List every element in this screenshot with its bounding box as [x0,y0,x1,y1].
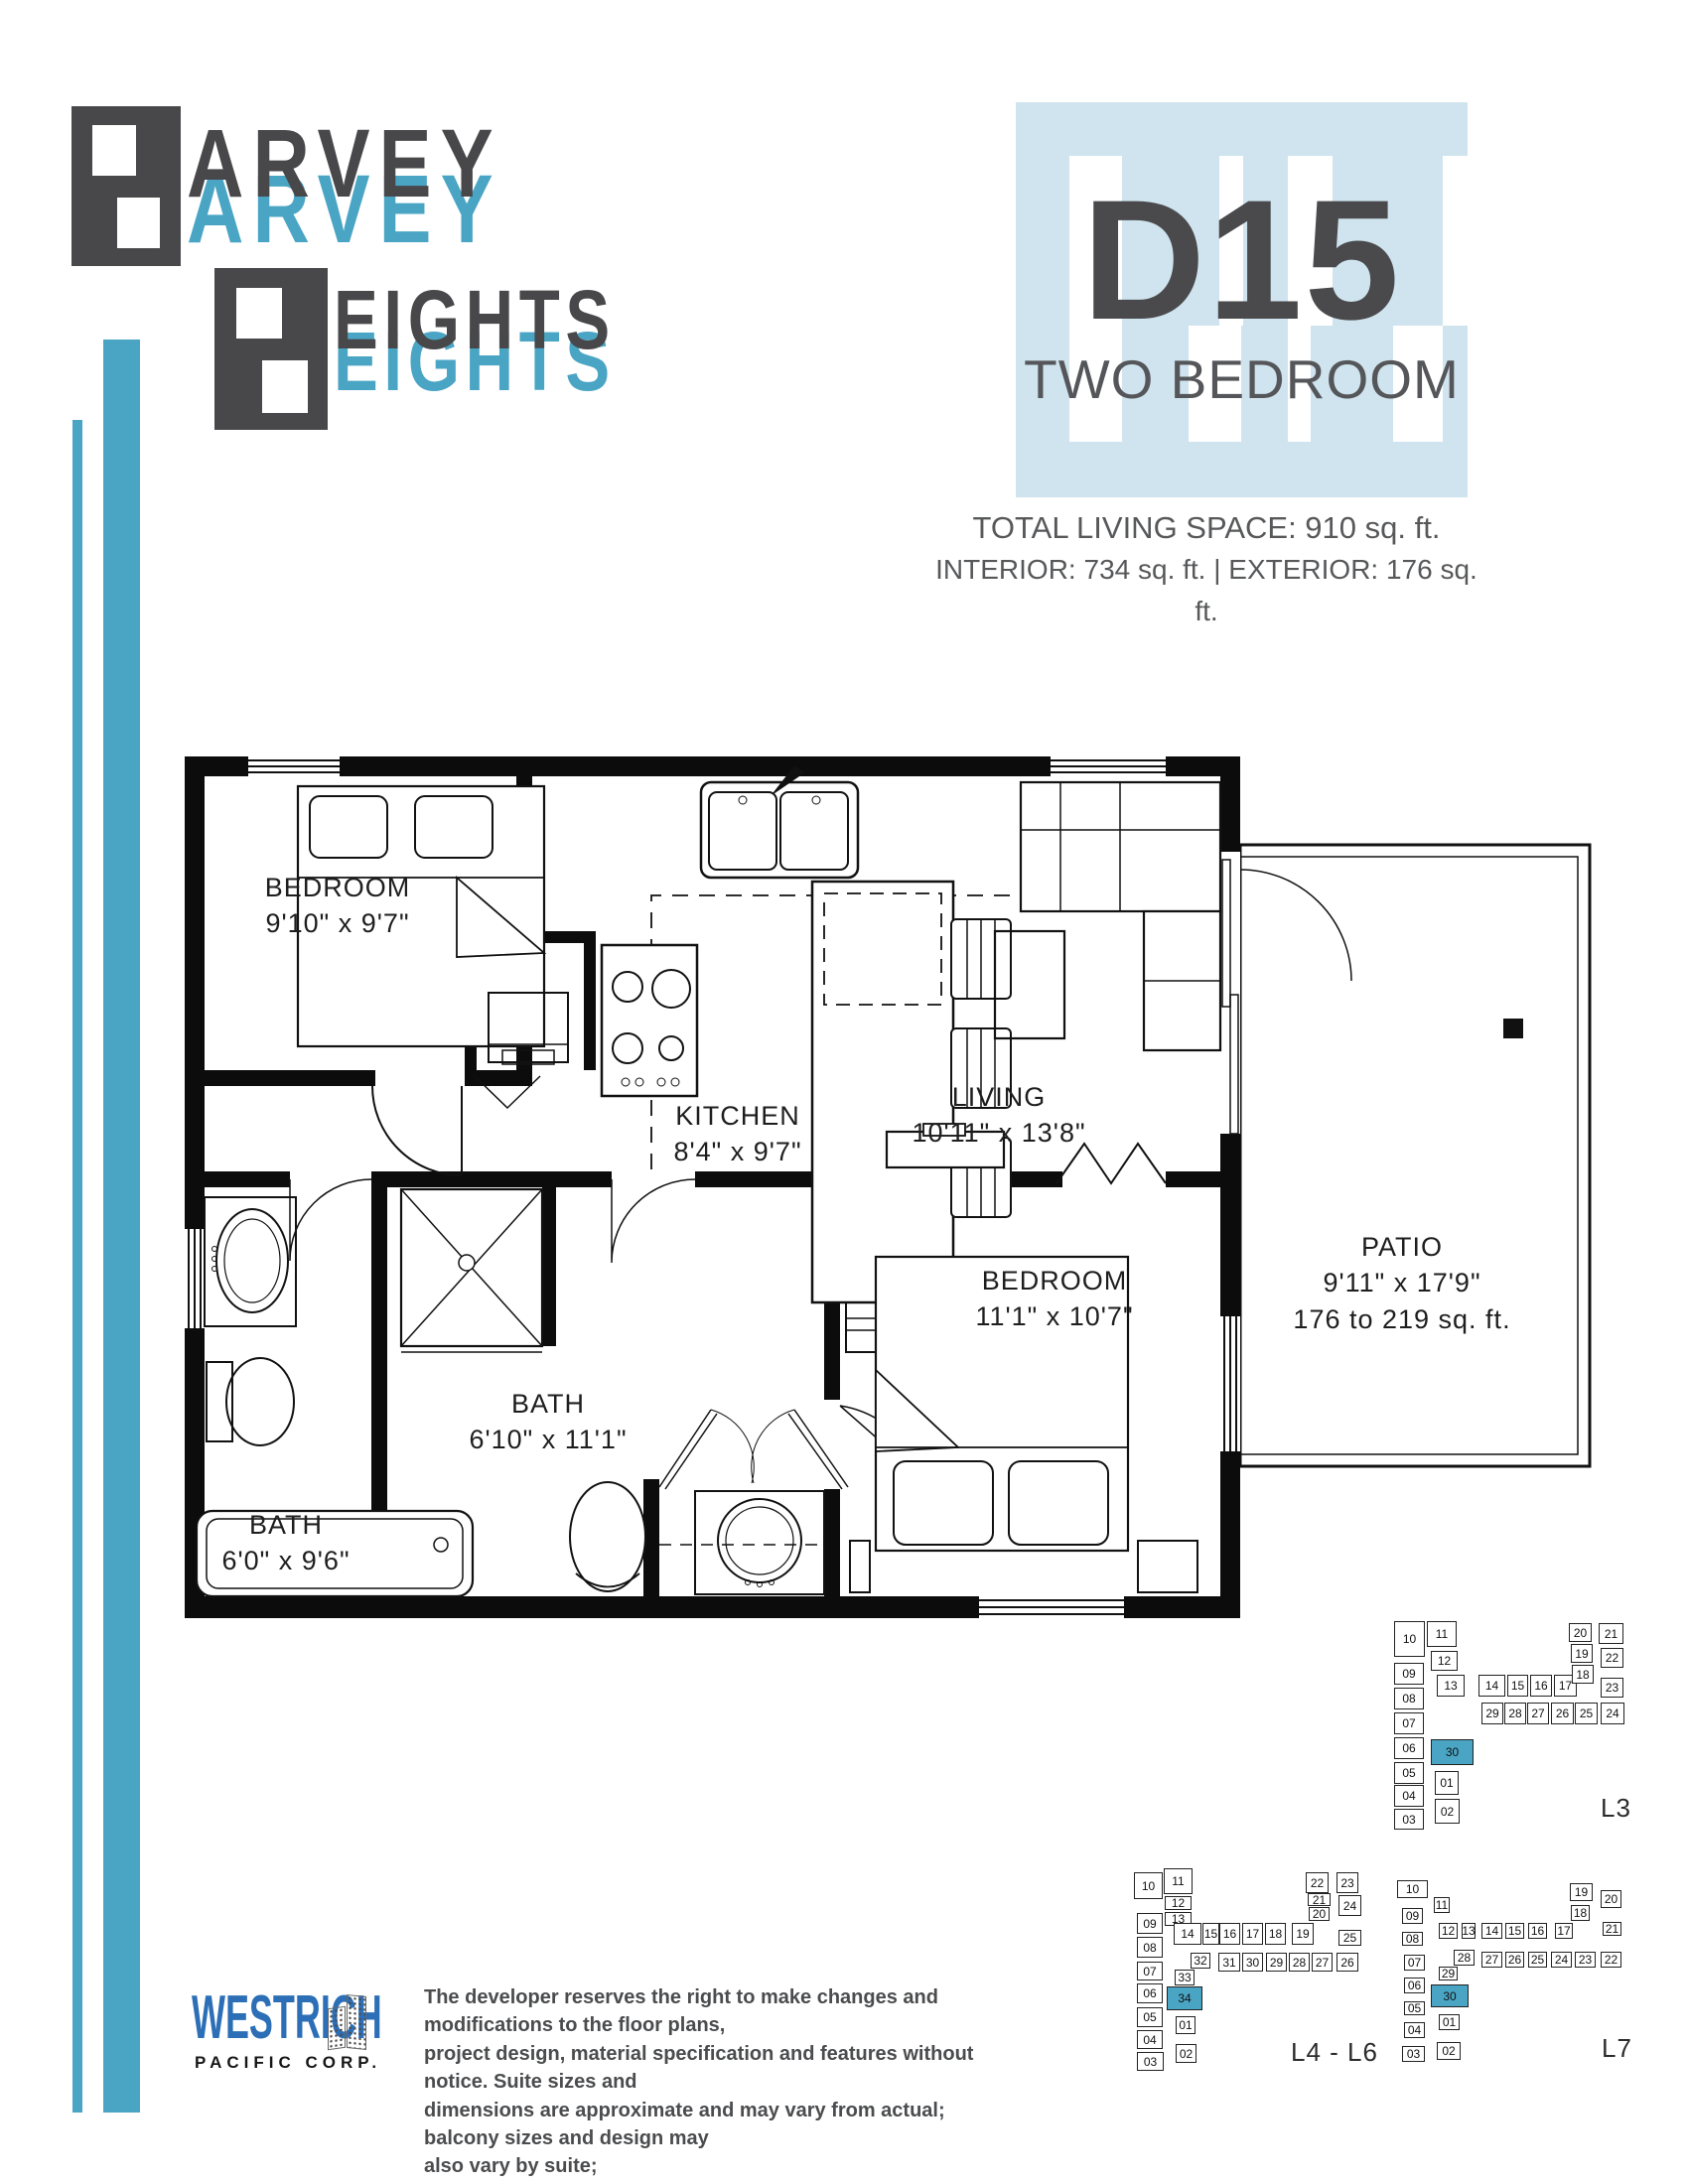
keyplan-L3-unit-21: 21 [1599,1623,1623,1644]
keyplan-L3-unit-10: 10 [1394,1621,1425,1657]
keyplan-L4-L6-unit-34: 34 [1167,1986,1202,2010]
keyplan-L3-unit-12: 12 [1431,1651,1458,1671]
keyplan-L4-L6-unit-14: 14 [1174,1923,1201,1945]
keyplan-L4-L6-unit-11: 11 [1164,1868,1193,1894]
keyplan-L3-unit-24: 24 [1601,1703,1624,1724]
floor-plan-sheet: { "brand": { "monogram_letter": "H", "wo… [0,0,1688,2184]
keyplan-L4-L6-unit-10: 10 [1134,1872,1163,1899]
keyplan-L4-L6-unit-09: 09 [1137,1913,1163,1934]
keyplan-L3-unit-14: 14 [1478,1675,1505,1697]
keyplan-L4-L6-unit-22: 22 [1306,1872,1329,1893]
keyplan-L7-unit-24: 24 [1551,1952,1572,1968]
keyplan-L4-L6-unit-23: 23 [1336,1872,1358,1893]
keyplan-L7-unit-16: 16 [1528,1923,1547,1939]
disclaimer-line: project design, material specification a… [424,2040,1020,2097]
keyplan-L7-unit-09: 09 [1402,1908,1423,1924]
keyplan-L3-unit-16: 16 [1530,1675,1552,1697]
keyplan-L4-L6-unit-19: 19 [1292,1923,1314,1945]
keyplan-L7-unit-21: 21 [1603,1922,1621,1936]
keyplan-L4-L6-unit-28: 28 [1289,1953,1310,1972]
keyplan-L7-unit-30: 30 [1431,1984,1469,2007]
keyplan-L4-L6-unit-18: 18 [1265,1923,1286,1945]
keyplan-label-L4-L6: L4 - L6 [1291,2037,1378,2068]
keyplan-L3-unit-20: 20 [1569,1623,1592,1642]
disclaimer-line: also vary by suite; [424,2152,1020,2180]
keyplan-L7-unit-26: 26 [1505,1952,1524,1968]
keyplan-L4-L6-unit-04: 04 [1137,2030,1163,2049]
keyplan-L3-unit-22: 22 [1601,1648,1623,1668]
keyplan-L3-unit-06: 06 [1394,1737,1424,1759]
keyplan-L4-L6-unit-26: 26 [1336,1953,1358,1972]
disclaimer-line: The developer reserves the right to make… [424,1983,1020,2040]
keyplan-label-L7: L7 [1602,2033,1632,2064]
keyplan-L7-unit-15: 15 [1505,1923,1524,1939]
keyplan-L7-unit-10: 10 [1397,1880,1428,1898]
keyplan-L7-unit-17: 17 [1555,1923,1573,1939]
keyplan-L7-unit-25: 25 [1528,1952,1547,1968]
keyplan-L3-unit-29: 29 [1481,1703,1503,1724]
disclaimer-text: The developer reserves the right to make… [424,1983,1020,2181]
keyplan-L7-unit-20: 20 [1601,1890,1621,1908]
keyplan-L3-unit-25: 25 [1575,1703,1598,1724]
keyplan-L7-unit-02: 02 [1437,2042,1461,2060]
disclaimer-line: dimensions are approximate and may vary … [424,2097,1020,2153]
keyplan-L4-L6-unit-16: 16 [1219,1923,1240,1945]
keyplan-L7-unit-29: 29 [1439,1967,1458,1980]
keyplan-L3-unit-11: 11 [1427,1621,1457,1647]
keyplan-L3-unit-30: 30 [1431,1739,1474,1765]
keyplan-L4-L6-unit-08: 08 [1137,1937,1163,1958]
keyplan-L7-unit-22: 22 [1601,1952,1621,1968]
keyplan-L7-unit-23: 23 [1575,1952,1596,1968]
buildings-icon [328,2006,346,2051]
keyplan-L3-unit-09: 09 [1394,1663,1424,1685]
keyplan-L7-unit-12: 12 [1439,1923,1458,1939]
keyplan-L3-unit-23: 23 [1601,1678,1623,1698]
keyplan-L7-unit-06: 06 [1404,1978,1425,1993]
keyplan-L4-L6-unit-12: 12 [1165,1896,1192,1910]
keyplan-L4-L6-unit-06: 06 [1137,1983,1163,2003]
keyplan-L7-unit-19: 19 [1570,1883,1593,1901]
keyplan-L4-L6-unit-20: 20 [1309,1907,1330,1921]
keyplan-L7-unit-18: 18 [1571,1905,1590,1921]
westrich-division-text: PACIFIC CORP. [195,2053,381,2073]
keyplan-L3-unit-13: 13 [1437,1675,1465,1697]
keyplan-L4-L6-unit-02: 02 [1176,2044,1196,2063]
keyplan-L4-L6-unit-03: 03 [1137,2052,1164,2071]
keyplan-L3-unit-19: 19 [1571,1644,1593,1663]
keyplan-L3-unit-27: 27 [1527,1703,1549,1724]
keyplan-L4-L6-unit-32: 32 [1191,1953,1210,1969]
keyplan-L3-unit-01: 01 [1435,1771,1459,1795]
buildings-icon [347,1994,366,2050]
keyplan-L7-unit-03: 03 [1402,2046,1425,2062]
keyplan-L7-unit-27: 27 [1481,1952,1502,1968]
keyplan-L4-L6-unit-05: 05 [1137,2007,1163,2027]
keyplan-L7-unit-01: 01 [1439,2014,1460,2030]
keyplan-L7-unit-07: 07 [1404,1955,1425,1971]
keyplan-L4-L6-unit-07: 07 [1137,1962,1163,1980]
keyplan-L3-unit-15: 15 [1507,1675,1528,1697]
keyplan-L7-unit-04: 04 [1404,2022,1425,2038]
keyplan-L4-L6-unit-24: 24 [1338,1895,1361,1916]
keyplan-L4-L6-unit-33: 33 [1175,1970,1195,1985]
keyplan-L3-unit-04: 04 [1394,1785,1424,1807]
keyplan-L4-L6-unit-31: 31 [1218,1953,1240,1972]
keyplan-L7-unit-28: 28 [1454,1950,1475,1966]
keyplan-L4-L6-unit-27: 27 [1312,1953,1333,1972]
keyplan-L7-unit-08: 08 [1402,1932,1423,1946]
keyplan-L4-L6-unit-17: 17 [1242,1923,1263,1945]
keyplan-L3-unit-02: 02 [1435,1799,1460,1824]
keyplan-L4-L6-unit-25: 25 [1338,1930,1361,1946]
keyplan-L3-unit-28: 28 [1504,1703,1526,1724]
keyplan-L3-unit-08: 08 [1394,1688,1424,1709]
keyplan-L3-unit-07: 07 [1394,1712,1424,1734]
keyplan-L4-L6-unit-15: 15 [1202,1923,1219,1945]
keyplan-L7-unit-13: 13 [1462,1923,1476,1939]
keyplan-L4-L6-unit-01: 01 [1176,2016,1196,2034]
keyplan-L3-unit-05: 05 [1394,1762,1424,1784]
keyplan-L3-unit-26: 26 [1551,1703,1574,1724]
keyplan-L3-unit-03: 03 [1394,1809,1424,1830]
keyplan-L4-L6-unit-21: 21 [1308,1893,1331,1906]
keyplan-L4-L6-unit-29: 29 [1266,1953,1287,1972]
keyplan-L4-L6-unit-30: 30 [1242,1953,1263,1972]
level-keyplans: 1011090807060504031213141516172019182122… [0,0,1688,2184]
keyplan-L3-unit-18: 18 [1572,1665,1594,1684]
keyplan-label-L3: L3 [1601,1793,1631,1824]
keyplan-L7-unit-11: 11 [1434,1897,1450,1913]
keyplan-L7-unit-14: 14 [1481,1923,1502,1939]
keyplan-L7-unit-05: 05 [1404,2001,1425,2015]
